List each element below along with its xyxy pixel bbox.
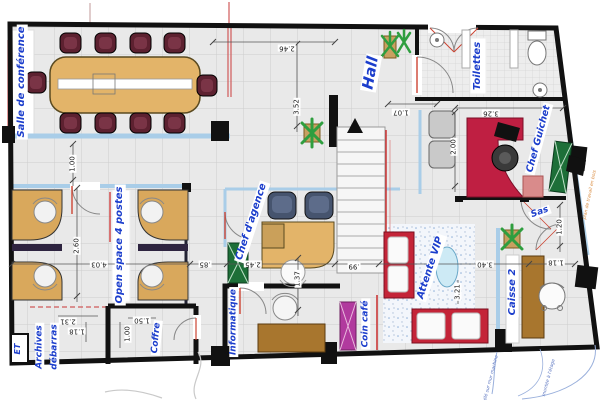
dim-1-00-coffre: 1.00 <box>125 325 132 343</box>
dim-2-60: 2.60 <box>74 237 81 255</box>
dim-1-00-top: 1.00 <box>70 155 77 173</box>
conference-table <box>50 57 200 113</box>
staircase <box>337 118 390 273</box>
room-label-open-space: Open space 4 postes <box>115 184 126 305</box>
coin-cafe-cabinet <box>340 302 356 350</box>
room-label-et: ET <box>14 342 22 357</box>
dim-1-37: 1.37 <box>295 270 302 288</box>
dim-1-18-left: 1.18 <box>68 328 86 335</box>
dim-3-52: 3.52 <box>294 98 301 116</box>
dim-2-31: 2.31 <box>59 318 77 325</box>
dim-3-21: 3.21 <box>455 283 462 301</box>
dim-3-40: 3.40 <box>476 261 494 268</box>
dim-0-99: .99 <box>347 263 360 270</box>
dim-4-03: 4.03 <box>90 261 108 268</box>
room-label-debarras: débarras <box>50 322 59 371</box>
floor-plan: Salle de conférence Hall Toilettes Chef … <box>0 0 600 400</box>
room-label-toilettes: Toilettes <box>473 40 484 92</box>
room-label-salle-conference: Salle de conférence <box>17 24 28 139</box>
dim-0-85: .85 <box>198 261 211 268</box>
dim-3-26: 3.26 <box>482 110 500 117</box>
room-label-informatique: Informatique <box>229 287 238 357</box>
room-label-archives: Archives <box>35 323 44 371</box>
dim-1-07: 1.07 <box>392 109 410 116</box>
dim-1-18-right: 1.18 <box>547 259 565 266</box>
floor-plan-drawing <box>0 0 600 400</box>
dim-2-45: 2.45 <box>244 261 262 268</box>
room-label-caisse2: Caisse 2 <box>508 267 519 318</box>
room-label-coin-cafe: Coin café <box>361 299 370 350</box>
dim-1-20: 1.20 <box>557 218 564 236</box>
dim-1-50: 1.50 <box>133 317 151 324</box>
dim-2-00: 2.00 <box>451 138 458 156</box>
dim-2-46: 2.46 <box>278 45 296 52</box>
